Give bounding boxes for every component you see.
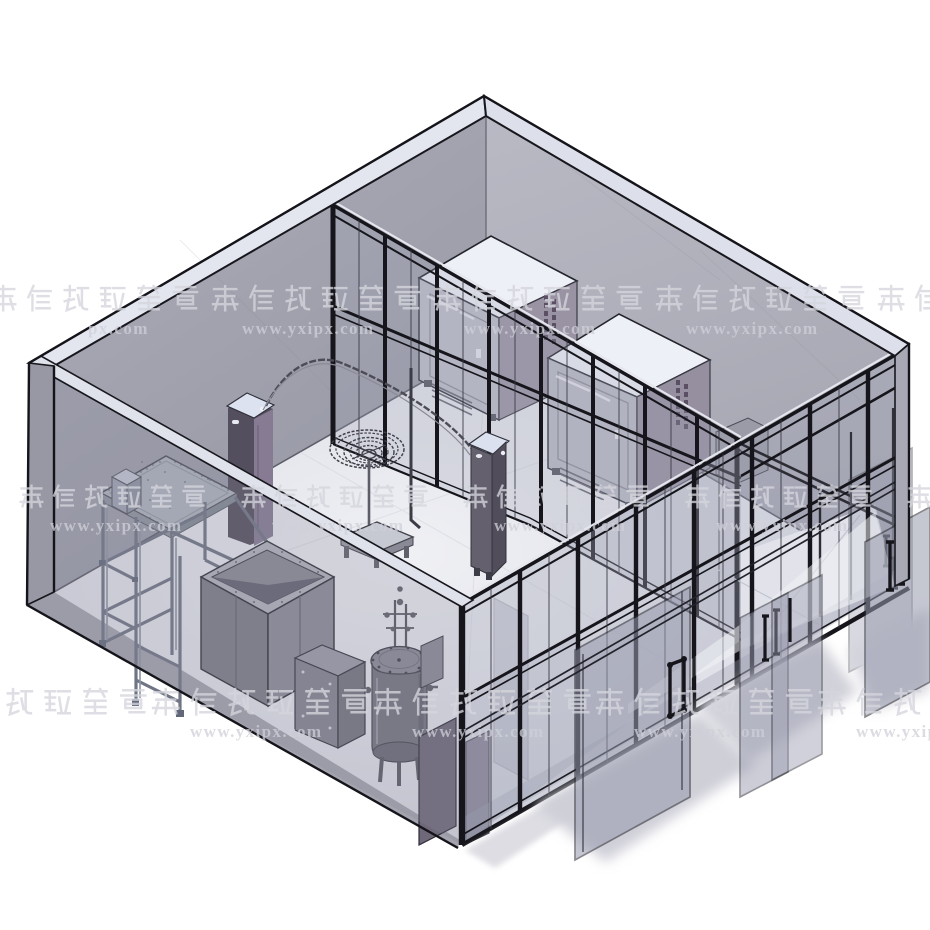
svg-text:www.yxipx.com: www.yxipx.com bbox=[716, 516, 848, 535]
svg-text:www.yxipx.com: www.yxipx.com bbox=[856, 722, 930, 741]
svg-text:www.yxipx.com: www.yxipx.com bbox=[686, 319, 818, 338]
svg-text:www.yxipx.com: www.yxipx.com bbox=[494, 516, 626, 535]
svg-text:www.yxipx.com: www.yxipx.com bbox=[50, 516, 182, 535]
svg-text:px.com: px.com bbox=[88, 319, 149, 338]
svg-text:www.yxipx.com: www.yxipx.com bbox=[190, 722, 322, 741]
svg-text:www.yxipx.com: www.yxipx.com bbox=[464, 319, 596, 338]
svg-text:www.yxipx.com: www.yxipx.com bbox=[242, 319, 374, 338]
svg-text:www.yxipx.com: www.yxipx.com bbox=[272, 516, 404, 535]
svg-text:www.yxipx.com: www.yxipx.com bbox=[412, 722, 544, 741]
svg-text:www.yxipx.com: www.yxipx.com bbox=[634, 722, 766, 741]
